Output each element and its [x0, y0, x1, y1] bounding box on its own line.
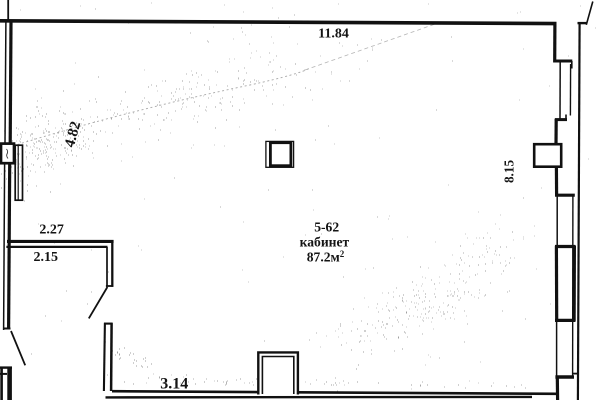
svg-text:кабинет: кабинет [300, 235, 350, 250]
svg-text:11.84: 11.84 [318, 26, 349, 41]
svg-text:2.27: 2.27 [39, 222, 64, 237]
svg-text:5-62: 5-62 [314, 220, 339, 235]
svg-text:3.14: 3.14 [160, 375, 188, 392]
svg-text:2.15: 2.15 [33, 250, 58, 265]
svg-text:8.15: 8.15 [501, 160, 516, 183]
svg-text:87.2м2: 87.2м2 [307, 249, 345, 265]
